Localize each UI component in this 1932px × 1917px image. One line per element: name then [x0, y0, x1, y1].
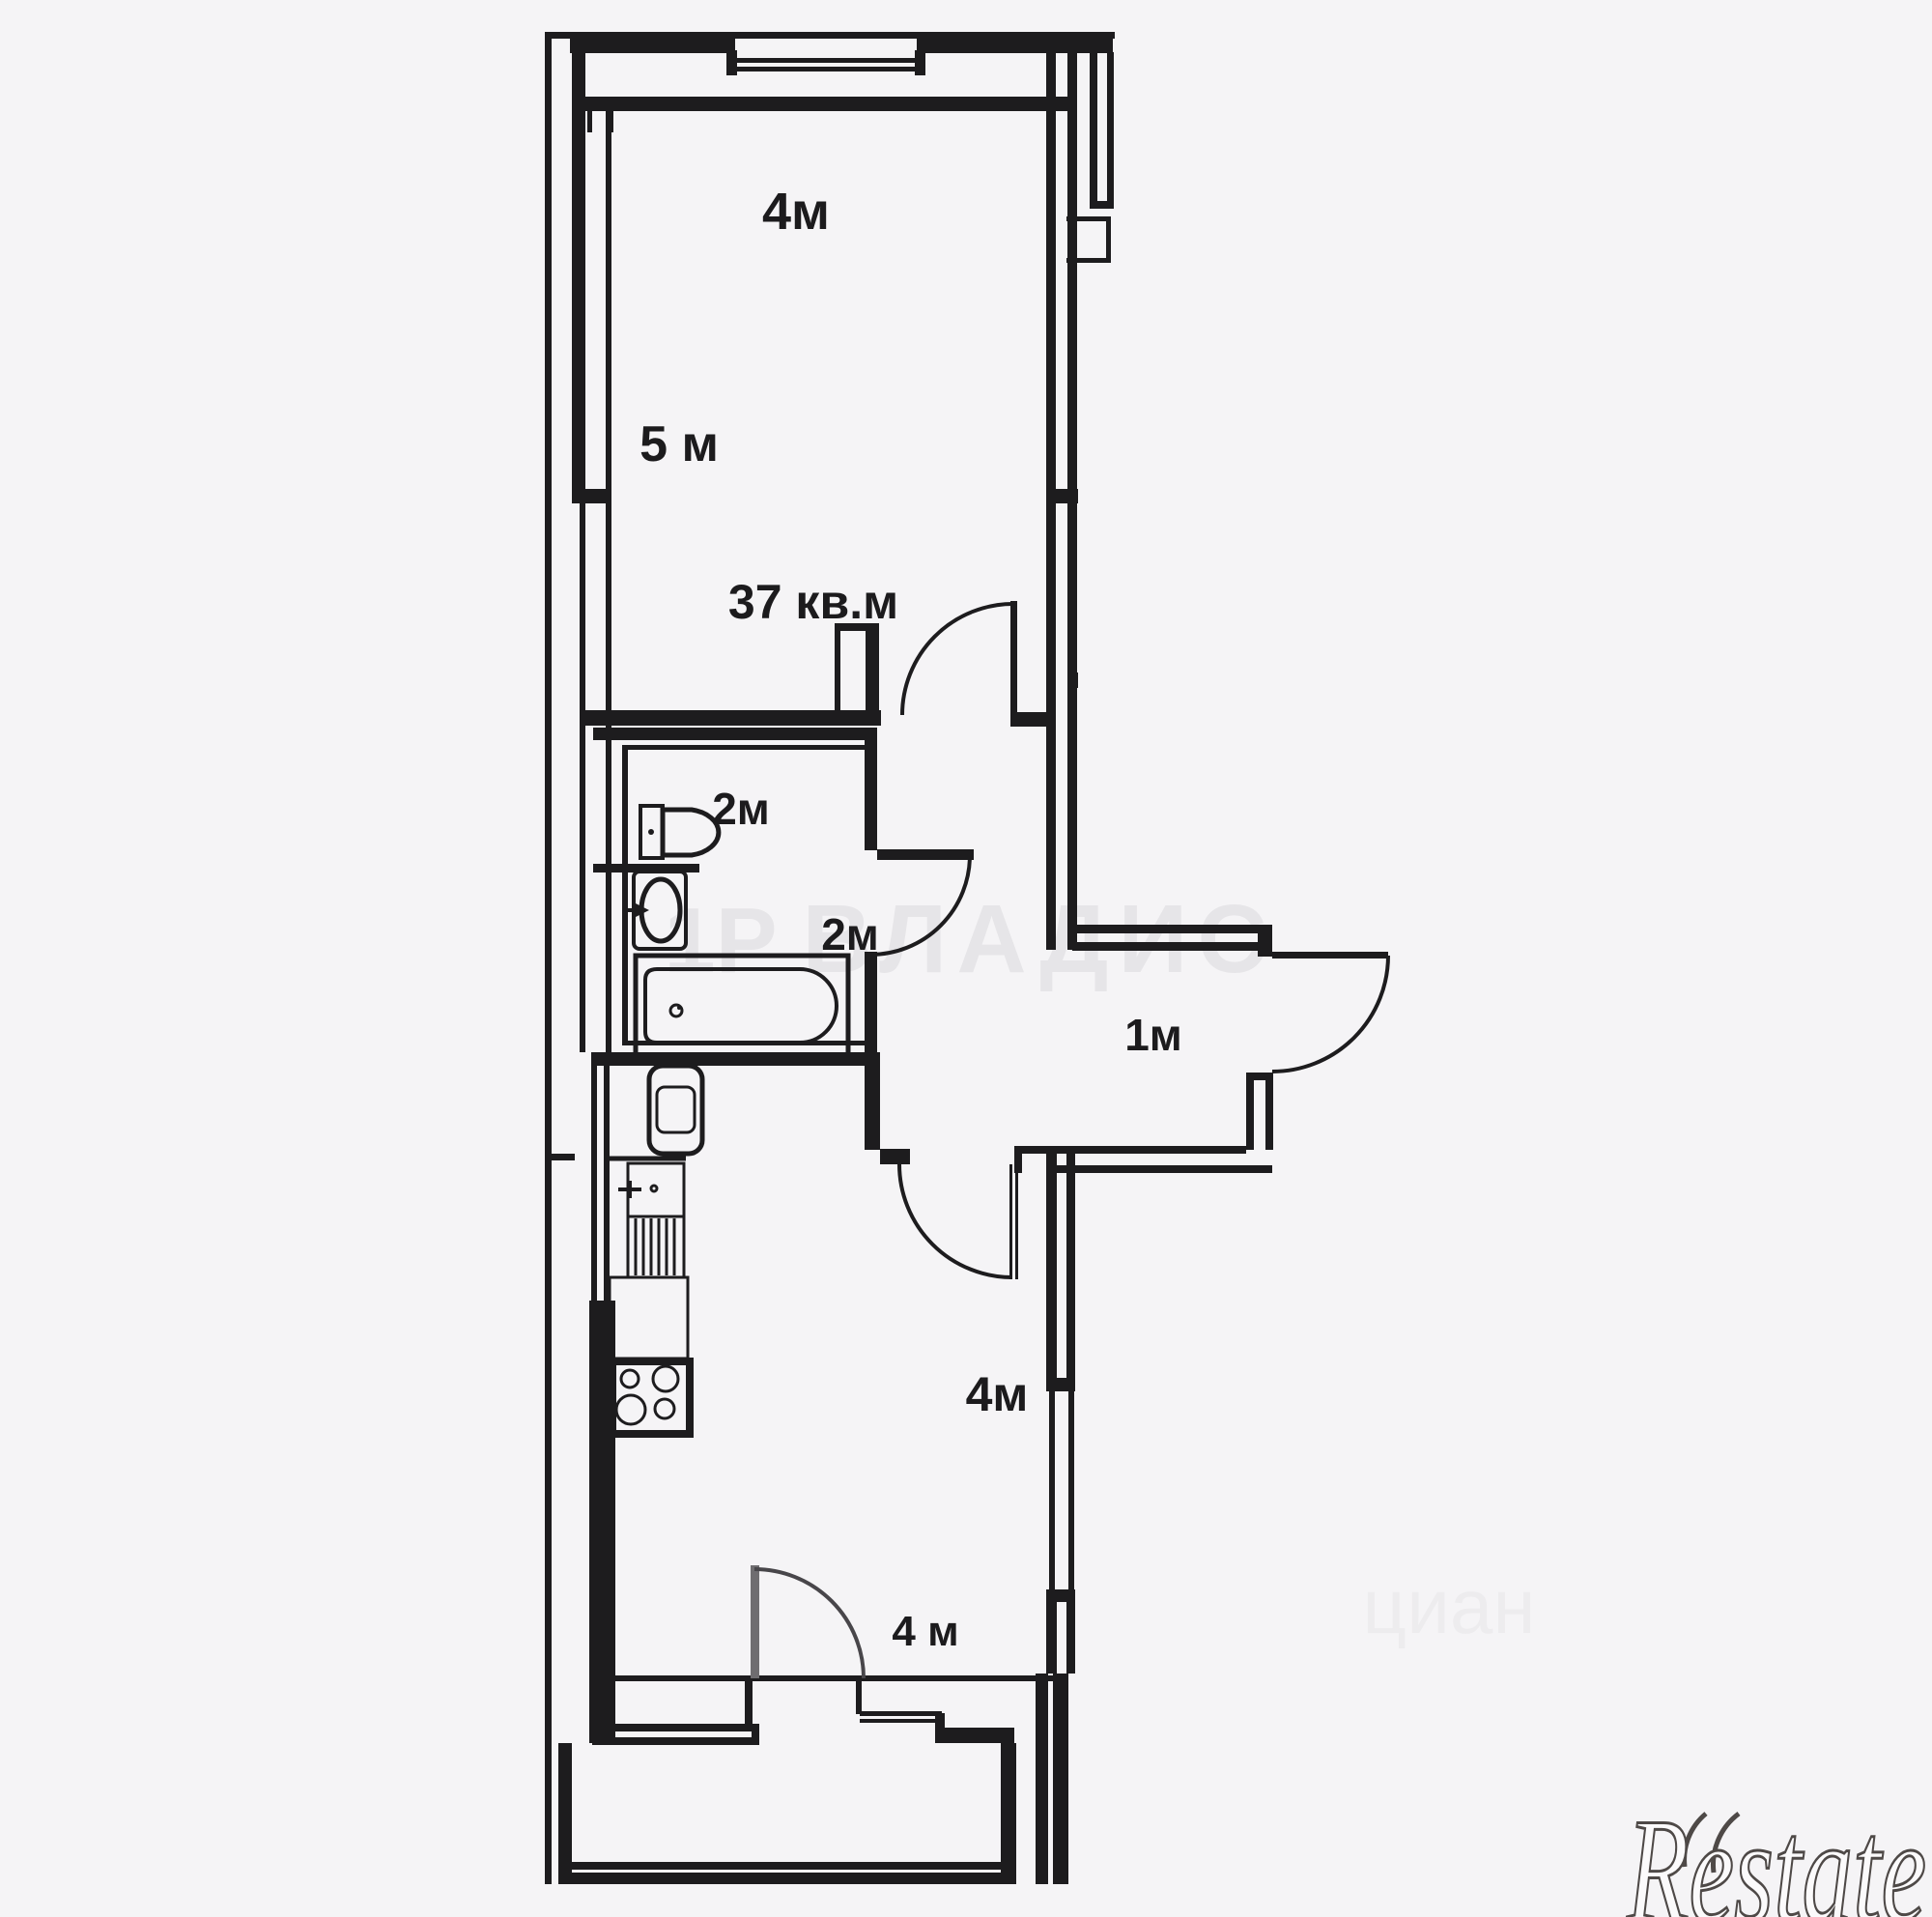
svg-text:4м: 4м [966, 1367, 1029, 1421]
svg-text:1м: 1м [1124, 1010, 1182, 1060]
svg-text:37 кв.м: 37 кв.м [728, 575, 898, 629]
svg-text:4м: 4м [762, 183, 830, 241]
svg-text:5 м: 5 м [639, 416, 719, 472]
svg-text:4 м: 4 м [892, 1608, 958, 1655]
svg-text:2м: 2м [712, 784, 770, 834]
svg-text:Restate: Restate [1626, 1788, 1926, 1917]
svg-text:2м: 2м [821, 909, 879, 959]
svg-text:циан: циан [1362, 1563, 1535, 1649]
